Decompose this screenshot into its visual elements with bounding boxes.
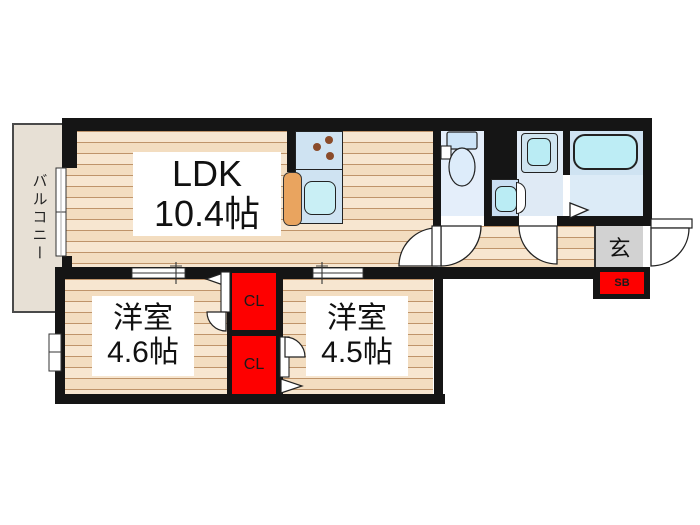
closet-top-door-arc bbox=[207, 312, 226, 331]
symbols-overlay bbox=[0, 0, 700, 525]
washroom-door-arc bbox=[519, 226, 557, 264]
closet-bottom-door-arc bbox=[285, 337, 305, 357]
closet-bottom-door-triangle bbox=[281, 379, 302, 393]
ldk-door-arc bbox=[399, 228, 437, 266]
floorplan: バルコニー 玄 CL CL SB bbox=[0, 0, 700, 525]
toilet-icon bbox=[441, 132, 477, 186]
sliding-door-left bbox=[132, 262, 185, 284]
ldk-door-leaf bbox=[432, 226, 441, 266]
bathroom-doorway bbox=[563, 175, 570, 216]
toilet-door-arc bbox=[441, 226, 481, 266]
bedroom-window bbox=[49, 334, 61, 371]
balcony-window bbox=[56, 168, 66, 256]
washroom-doorway bbox=[519, 216, 557, 226]
entry-door-leaf bbox=[651, 219, 692, 228]
bathroom-door-triangle bbox=[570, 203, 588, 218]
sliding-door-right bbox=[313, 262, 363, 284]
toilet-doorway bbox=[441, 216, 484, 226]
closet-top-door-leaf bbox=[221, 272, 230, 312]
entry-door-arc bbox=[651, 228, 689, 266]
